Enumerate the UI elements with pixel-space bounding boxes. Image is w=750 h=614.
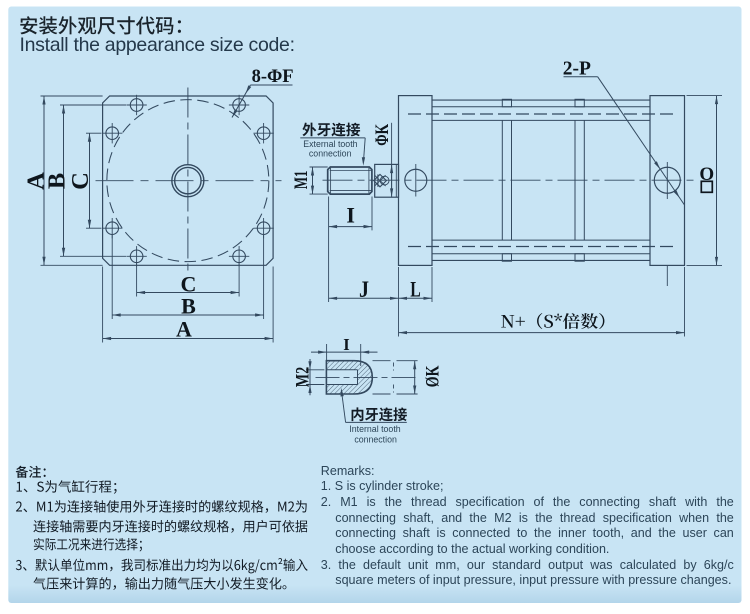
svg-text:connection: connection <box>309 149 352 159</box>
svg-text:J: J <box>359 277 369 302</box>
svg-text:8-ΦF: 8-ΦF <box>252 67 294 87</box>
svg-text:I: I <box>343 335 349 354</box>
svg-text:C: C <box>181 271 197 296</box>
svg-text:ΦK: ΦK <box>372 124 393 146</box>
svg-text:L: L <box>410 277 421 302</box>
svg-text:ØK: ØK <box>422 365 443 387</box>
svg-text:B: B <box>181 294 196 319</box>
svg-text:O: O <box>699 164 714 185</box>
svg-text:Internal tooth: Internal tooth <box>349 424 400 434</box>
svg-text:C: C <box>67 172 94 190</box>
svg-text:connection: connection <box>354 434 397 444</box>
svg-text:External tooth: External tooth <box>303 139 357 149</box>
svg-text:M2: M2 <box>292 367 313 388</box>
svg-text:I: I <box>346 203 355 228</box>
svg-text:A: A <box>176 316 192 341</box>
svg-text:M1: M1 <box>291 171 312 190</box>
